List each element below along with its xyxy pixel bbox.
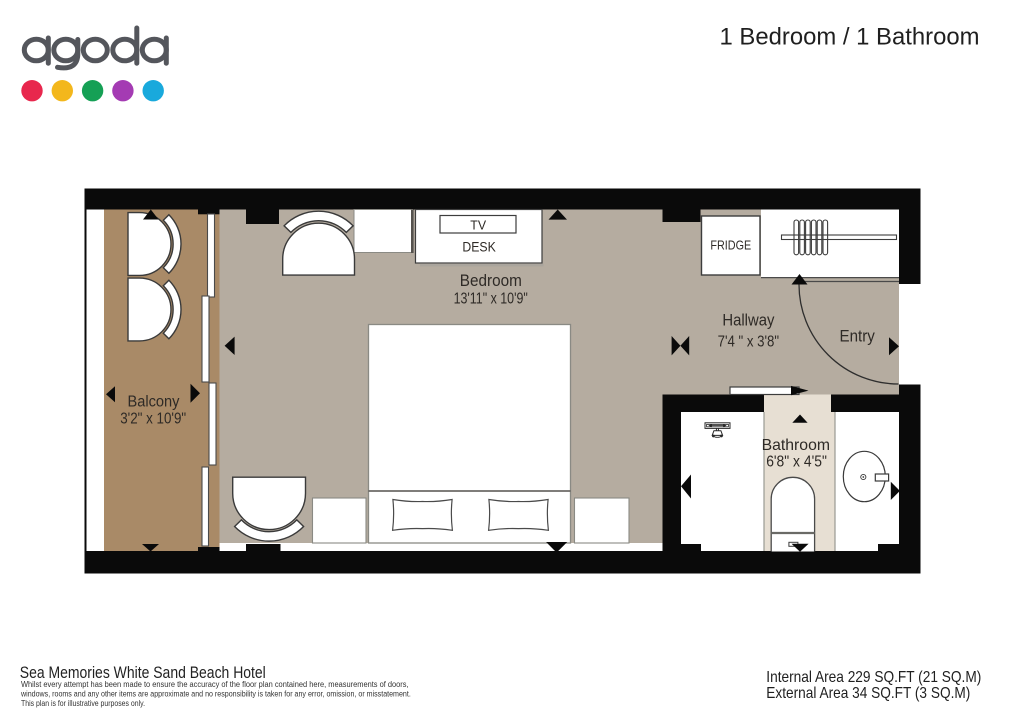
svg-text:Hallway: Hallway: [722, 312, 775, 330]
svg-text:Internal Area 229 SQ.FT (21 SQ: Internal Area 229 SQ.FT (21 SQ.M): [766, 669, 981, 686]
svg-text:FRIDGE: FRIDGE: [710, 238, 751, 252]
svg-text:windows, rooms and any other i: windows, rooms and any other items are a…: [20, 690, 411, 699]
svg-text:Balcony: Balcony: [128, 394, 180, 411]
svg-text:Entry: Entry: [840, 328, 876, 346]
svg-text:Bathroom: Bathroom: [762, 437, 830, 454]
svg-text:External Area 34 SQ.FT (3 SQ.M: External Area 34 SQ.FT (3 SQ.M): [766, 685, 970, 702]
svg-text:1 Bedroom / 1 Bathroom: 1 Bedroom / 1 Bathroom: [720, 24, 980, 51]
svg-text:DESK: DESK: [462, 239, 495, 254]
svg-text:3'2" x 10'9": 3'2" x 10'9": [120, 410, 186, 427]
svg-text:Bedroom: Bedroom: [460, 272, 522, 290]
svg-text:This plan is for illustrative: This plan is for illustrative purposes o…: [21, 699, 145, 708]
svg-text:6'8" x 4'5": 6'8" x 4'5": [766, 454, 827, 471]
svg-text:13'11" x 10'9": 13'11" x 10'9": [454, 290, 528, 307]
svg-text:TV: TV: [470, 218, 486, 233]
svg-text:7'4 " x 3'8": 7'4 " x 3'8": [718, 333, 780, 350]
svg-text:Whilst every attempt has been: Whilst every attempt has been made to en…: [21, 680, 409, 689]
